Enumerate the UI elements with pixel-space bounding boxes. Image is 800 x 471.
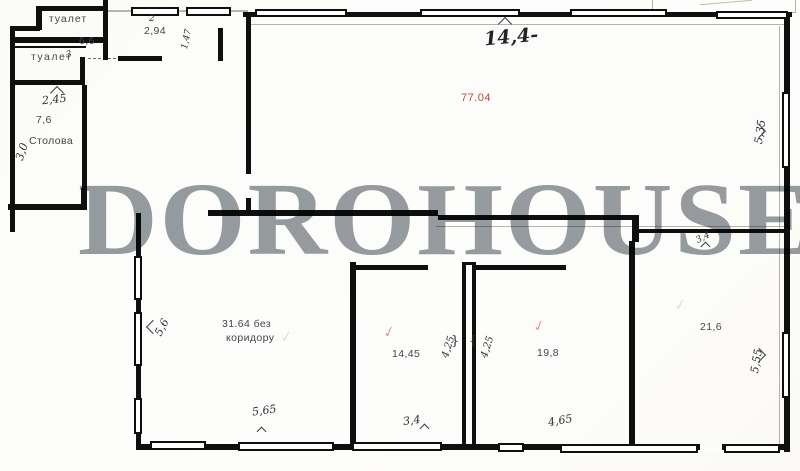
check-mark-icon: ✓ xyxy=(381,322,398,343)
door-opening xyxy=(700,443,722,453)
room-area-mid: 14,45 xyxy=(392,348,420,360)
window-segment xyxy=(134,312,142,366)
window-segment xyxy=(782,92,790,168)
wall-segment xyxy=(12,46,86,48)
window-segment xyxy=(134,398,142,434)
room-area-left-line1: 31.64 без xyxy=(222,318,271,330)
window-segment xyxy=(186,7,231,16)
dim-room-mid-depth-right: 4,25 xyxy=(479,335,496,360)
wall-segment xyxy=(350,262,356,446)
window-segment xyxy=(150,441,206,450)
check-mark-icon: ✓ xyxy=(279,327,295,347)
brace-right: { xyxy=(469,334,477,349)
wall-segment xyxy=(12,80,84,85)
wall-segment xyxy=(80,57,85,85)
window-segment xyxy=(255,9,347,17)
dim-vestibule-width: 2,94 xyxy=(144,25,166,37)
check-mark-icon: ✓ xyxy=(531,316,548,337)
dim-dining-depth: 3,0 xyxy=(13,141,31,162)
wall-segment xyxy=(10,26,15,232)
dim-wall-6-6: 6,6 xyxy=(79,35,95,47)
check-mark-icon: ✓ xyxy=(672,295,688,315)
wall-segment xyxy=(103,0,108,60)
dim-vestibule-depth: 1,47 xyxy=(180,28,194,50)
dim-room-right-width: 4,65 xyxy=(547,412,573,429)
wall-segment xyxy=(462,262,466,446)
dim-room-left-width: 5,65 xyxy=(251,402,277,418)
room-area-far-right: 21,6 xyxy=(700,321,722,333)
wall-segment xyxy=(8,204,87,210)
window-segment xyxy=(352,442,442,451)
wall-segment xyxy=(218,28,223,61)
window-segment xyxy=(238,442,334,451)
window-segment xyxy=(131,7,179,16)
wall-segment xyxy=(118,56,162,61)
room-area-left-line2: коридору xyxy=(226,332,274,344)
wall-segment xyxy=(246,12,251,174)
window-segment xyxy=(420,9,520,17)
room-label-toilet-top: туалет xyxy=(38,13,98,25)
wall-segment xyxy=(472,262,476,446)
wall-segment xyxy=(36,6,108,11)
room-label-dining: Столова xyxy=(29,135,73,147)
window-segment xyxy=(782,332,790,398)
window-segment xyxy=(724,444,780,453)
dim-room-mid-width: 3,4 xyxy=(402,413,421,428)
dimension-tick xyxy=(420,424,430,434)
window-segment xyxy=(560,444,698,453)
dim-vestibule-mark: 2 xyxy=(149,14,155,24)
room-area-right: 19,8 xyxy=(537,347,559,359)
brace-left: } xyxy=(451,334,459,349)
dim-hall-width: 14,4- xyxy=(483,24,539,51)
window-segment xyxy=(498,443,524,452)
window-segment xyxy=(570,9,667,17)
room-area-dining: 7,6 xyxy=(36,114,52,126)
floor-plan-scan: DOROHOUSE туалет 6,6 туалет 3 7,6 Столов… xyxy=(0,0,800,471)
dimension-tick xyxy=(257,427,267,437)
room-area-hall: 77.04 xyxy=(461,92,491,104)
watermark-text: DOROHOUSE xyxy=(78,168,800,272)
window-segment xyxy=(716,11,788,19)
